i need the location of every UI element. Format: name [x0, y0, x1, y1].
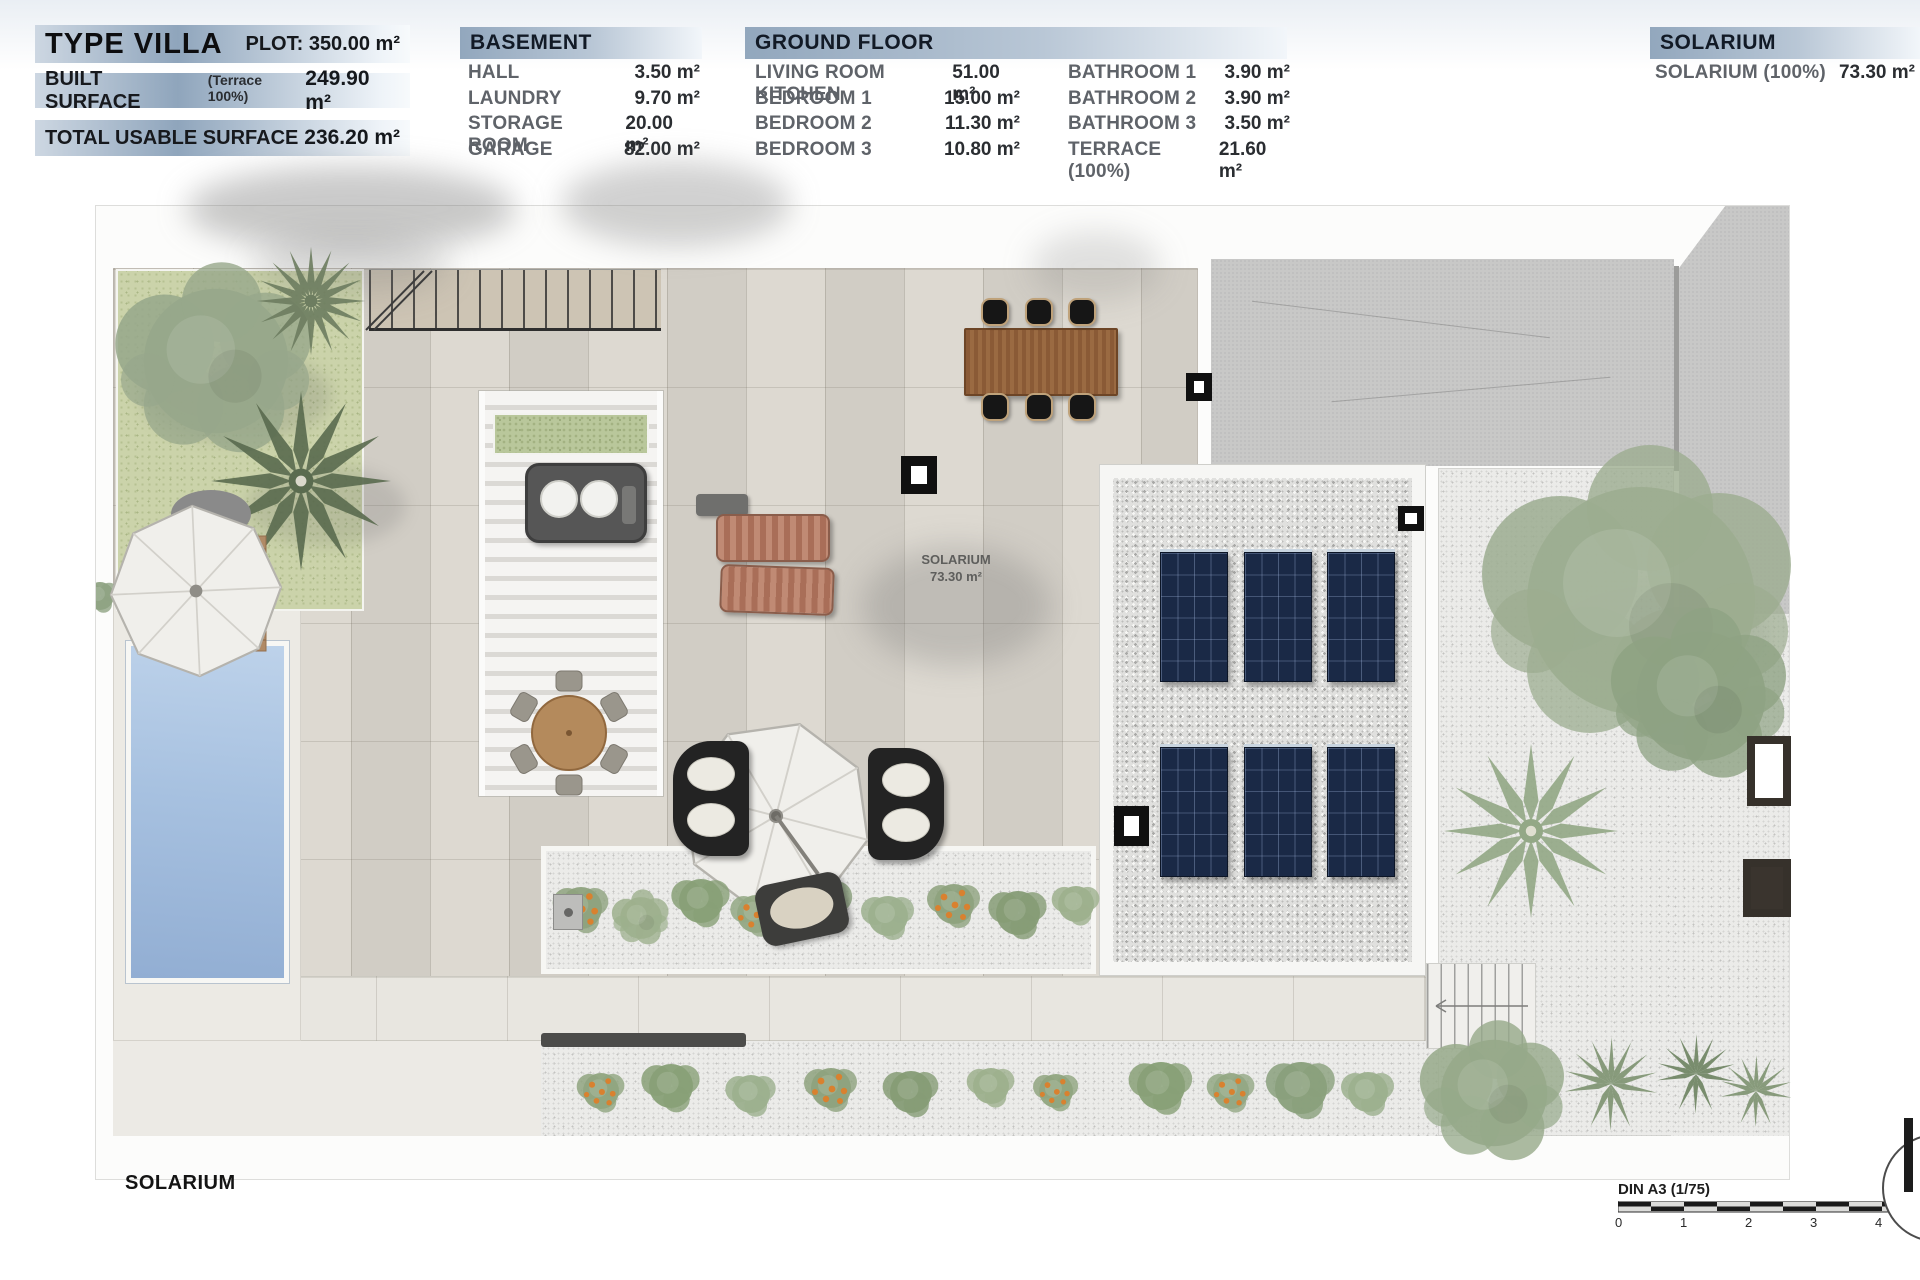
row-value: 10.80 m²: [944, 139, 1020, 161]
basement-title: BASEMENT: [470, 31, 592, 55]
lounger-side-table: [696, 494, 748, 516]
row-label: BEDROOM 2: [755, 113, 872, 135]
solar-panel: [1160, 747, 1228, 877]
scale-tick: 0: [1615, 1215, 1622, 1230]
sun-lounger: [719, 564, 835, 616]
lounge-sofa: [673, 741, 749, 856]
room-label: SOLARIUM 73.30 m²: [891, 551, 1021, 585]
solarium-floor-plan: SOLARIUM 73.30 m²: [95, 205, 1790, 1180]
table-row: GARAGE 82.00 m²: [468, 139, 700, 161]
scale-label: DIN A3 (1/75): [1618, 1181, 1920, 1198]
scale-bar: DIN A3 (1/75) 0 1 2 3 4: [1618, 1181, 1920, 1229]
row-label: TERRACE (100%): [1068, 139, 1219, 183]
table-row: BEDROOM 1 15.00 m²: [755, 88, 1020, 110]
row-value: 11.30 m²: [945, 113, 1020, 135]
solarium-header-bar: SOLARIUM: [1650, 27, 1920, 59]
solar-panel: [1327, 747, 1395, 877]
scale-tick: 3: [1810, 1215, 1817, 1230]
row-label: SOLARIUM (100%): [1655, 62, 1826, 84]
built-surface-label-group: BUILT SURFACE (Terrace 100%): [45, 68, 305, 114]
usable-surface-bar: TOTAL USABLE SURFACE 236.20 m²: [35, 120, 410, 156]
shadow-smudge: [186, 166, 516, 251]
row-label: BATHROOM 2: [1068, 88, 1196, 110]
room-label-name: SOLARIUM: [891, 551, 1021, 568]
solar-panel: [1327, 552, 1395, 682]
row-value: 15.00 m²: [944, 88, 1020, 110]
row-label: BATHROOM 1: [1068, 62, 1196, 84]
roof-drain: [1114, 806, 1149, 846]
roof-drain: [1186, 373, 1212, 401]
concrete-right-strip: [1679, 206, 1789, 614]
row-value: 21.60 m²: [1219, 139, 1290, 183]
table-row: SOLARIUM (100%) 73.30 m²: [1655, 62, 1915, 84]
solar-panel: [1160, 552, 1228, 682]
bbq-grill: [525, 463, 647, 543]
dining-chair: [1025, 393, 1053, 421]
concrete-joint: [1674, 266, 1679, 471]
row-value: 3.50 m²: [1225, 113, 1290, 135]
row-label: BATHROOM 3: [1068, 113, 1196, 135]
basement-header-bar: BASEMENT: [460, 27, 702, 59]
scale-tick: 2: [1745, 1215, 1752, 1230]
room-label-area: 73.30 m²: [891, 568, 1021, 585]
ground-floor-header-bar: GROUND FLOOR: [745, 27, 1287, 59]
dining-chair: [981, 298, 1009, 326]
low-wall: [541, 1033, 746, 1047]
table-row: HALL 3.50 m²: [468, 62, 700, 84]
usable-surface-label: TOTAL USABLE SURFACE: [45, 127, 298, 150]
wall-opening: [1747, 736, 1791, 806]
solar-panel-enclosure: [1099, 464, 1426, 976]
table-row: LAUNDRY 9.70 m²: [468, 88, 700, 110]
concrete-roof-area: [1211, 259, 1674, 466]
staircase-top: [369, 269, 661, 331]
floor-caption: SOLARIUM: [125, 1172, 236, 1195]
row-value: 82.00 m²: [624, 139, 700, 161]
solar-panel: [1244, 552, 1312, 682]
dining-chair: [1025, 298, 1053, 326]
solarium-title: SOLARIUM: [1660, 31, 1776, 55]
row-value: 9.70 m²: [635, 88, 700, 110]
dining-chair: [981, 393, 1009, 421]
garden-light: [553, 894, 583, 930]
row-label: BEDROOM 1: [755, 88, 872, 110]
villa-type-title: TYPE VILLA: [45, 28, 223, 61]
staircase-bottom: [1426, 963, 1536, 1049]
lounge-sofa: [868, 748, 944, 860]
row-value: 3.90 m²: [1225, 88, 1290, 110]
pergola-slats: [479, 391, 663, 796]
floor-plan-sheet: TYPE VILLA PLOT: 350.00 m² BUILT SURFACE…: [0, 0, 1920, 1280]
row-value: 3.50 m²: [635, 62, 700, 84]
built-surface-value: 249.90 m²: [305, 67, 400, 115]
table-row: BATHROOM 3 3.50 m²: [1068, 113, 1290, 135]
dining-chair: [1068, 393, 1096, 421]
row-label: LAUNDRY: [468, 88, 562, 110]
usable-surface-value: 236.20 m²: [304, 126, 400, 150]
dining-table: [964, 328, 1118, 396]
ground-floor-title: GROUND FLOOR: [755, 31, 934, 55]
shadow-smudge: [561, 161, 791, 246]
table-row: BEDROOM 2 11.30 m²: [755, 113, 1020, 135]
row-label: BEDROOM 3: [755, 139, 872, 161]
table-row: TERRACE (100%) 21.60 m²: [1068, 139, 1290, 183]
dining-chair: [1068, 298, 1096, 326]
garden-lawn: [116, 269, 364, 611]
swimming-pool: [126, 641, 289, 983]
row-label: HALL: [468, 62, 519, 84]
scale-ticks: 0 1 2 3 4: [1618, 1213, 1920, 1229]
sun-lounger: [716, 514, 830, 562]
row-value: 3.90 m²: [1225, 62, 1290, 84]
plot-value: PLOT: 350.00 m²: [245, 33, 400, 56]
row-value: 73.30 m²: [1839, 62, 1915, 84]
north-symbol-bar: [1904, 1118, 1913, 1192]
built-surface-label: BUILT SURFACE: [45, 68, 202, 114]
summary-title-bar: TYPE VILLA PLOT: 350.00 m²: [35, 25, 410, 63]
wall-opening: [1743, 859, 1791, 917]
roof-drain: [901, 456, 937, 494]
built-surface-note: (Terrace 100%): [208, 72, 306, 104]
hedge-strip: [493, 413, 649, 455]
bottom-gravel-strip: [541, 1041, 1438, 1136]
row-label: GARAGE: [468, 139, 553, 161]
table-row: BATHROOM 1 3.90 m²: [1068, 62, 1290, 84]
scale-tick: 4: [1875, 1215, 1882, 1230]
solar-gravel-bed: [1113, 478, 1412, 962]
roof-drain: [1398, 506, 1424, 531]
scale-bar-graphic: [1618, 1201, 1920, 1213]
walkway: [113, 976, 1426, 1041]
solar-panel: [1244, 747, 1312, 877]
table-row: BEDROOM 3 10.80 m²: [755, 139, 1020, 161]
table-row: BATHROOM 2 3.90 m²: [1068, 88, 1290, 110]
built-surface-bar: BUILT SURFACE (Terrace 100%) 249.90 m²: [35, 73, 410, 108]
scale-tick: 1: [1680, 1215, 1687, 1230]
